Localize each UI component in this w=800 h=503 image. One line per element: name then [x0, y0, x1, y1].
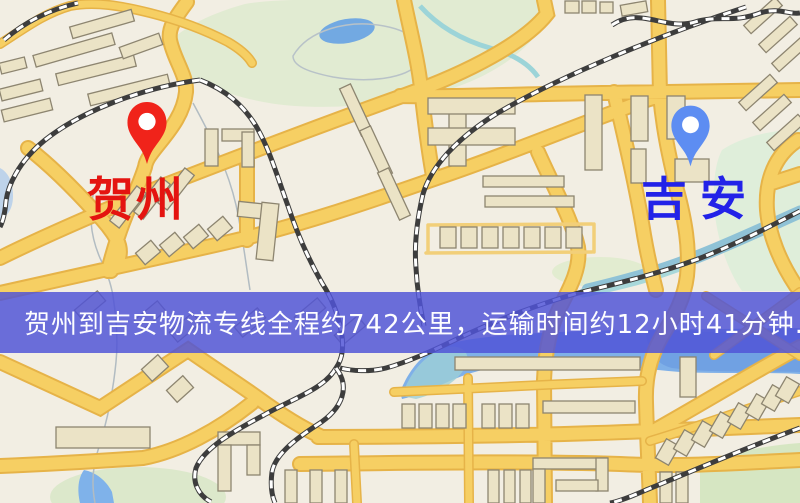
- route-info-banner: 贺州到吉安物流专线全程约742公里，运输时间约12小时41分钟.: [0, 292, 800, 353]
- map-canvas: [0, 0, 800, 503]
- destination-pin: [668, 103, 713, 169]
- pin-hole: [682, 116, 699, 133]
- pin-body: [671, 106, 709, 167]
- destination-city-label: 吉安: [641, 176, 759, 222]
- pin-hole: [138, 113, 155, 130]
- route-info-text: 贺州到吉安物流专线全程约742公里，运输时间约12小时41分钟.: [0, 304, 800, 341]
- location-pin-icon: [668, 103, 713, 169]
- pin-body: [127, 102, 166, 164]
- map-screenshot: 贺州 吉安 贺州到吉安物流专线全程约742公里，运输时间约12小时41分钟.: [0, 0, 800, 503]
- origin-city-label: 贺州: [87, 177, 185, 224]
- origin-pin: [124, 99, 170, 167]
- location-pin-icon: [124, 99, 170, 167]
